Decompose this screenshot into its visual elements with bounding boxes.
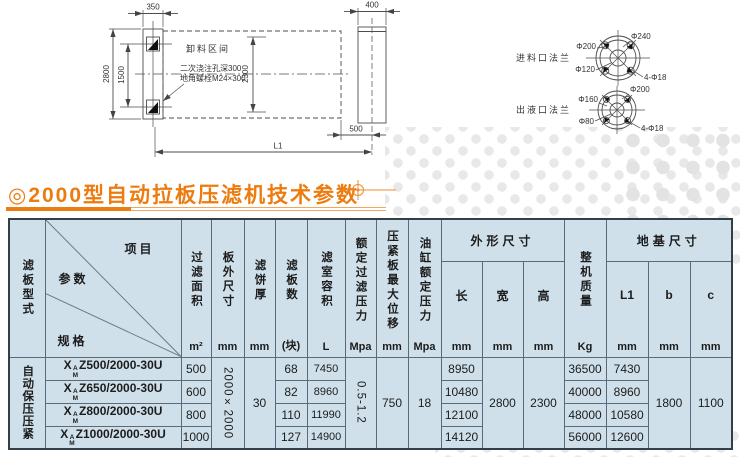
crosshair-mark	[340, 179, 400, 201]
corner-param-label: 参数	[59, 270, 89, 287]
cell-model-3: XAMZ1000/2000-30U	[45, 426, 181, 449]
cell-volume-1: 8960	[307, 380, 345, 403]
header-cake-thickness: 滤饼厚mm	[244, 219, 275, 357]
cell-model-0: XAMZ500/2000-30U	[45, 357, 181, 380]
cell-l1-0: 7430	[606, 357, 648, 380]
header-plate-type: 滤板型式	[9, 219, 45, 357]
cell-weight-2: 48000	[564, 403, 606, 426]
feed-flange-bolt-circle-dia: Φ200	[576, 42, 596, 51]
cell-filter-pressure-value: 0.5-1.2	[345, 357, 376, 449]
dim-350: 350	[146, 3, 160, 12]
cell-plates-2: 110	[275, 403, 307, 426]
feed-flange-view: Φ240 Φ200 Φ120 4-Φ18 进料口法兰	[516, 30, 667, 86]
cell-area-2: 800	[181, 403, 211, 426]
header-overall-dims-group: 外形尺寸	[441, 219, 564, 261]
dim-400: 400	[365, 1, 379, 10]
cell-cake-thickness-value: 30	[244, 357, 275, 449]
cell-l1-3: 12600	[606, 426, 648, 449]
anchor-note-line2: 地角螺栓M24×300	[180, 73, 246, 83]
underline-thick-segment	[6, 207, 131, 211]
cell-area-0: 500	[181, 357, 211, 380]
header-height: 高mm	[523, 261, 564, 357]
outlet-flange-bolt-circle-dia: Φ160	[578, 95, 598, 104]
anchor-note-line1: 二次浇注孔深300	[180, 63, 242, 73]
outlet-flange-view: Φ200 Φ160 Φ80 4-Φ18 出液口法兰	[516, 85, 664, 134]
spec-table: 滤板型式 项目 参数 规格 过滤面积m² 板外尺寸mm 滤饼厚mm 滤板数(块)…	[8, 218, 733, 450]
dim-2800: 2800	[102, 65, 111, 83]
underline-thin-segment	[131, 207, 386, 211]
corner-item-label: 项目	[124, 240, 154, 257]
table-row: 自动保压压紧 XAMZ500/2000-30U 500 2000×2000 30…	[9, 357, 732, 380]
feed-flange-inner-dia: Φ120	[575, 65, 595, 74]
title-underline	[6, 207, 386, 212]
cell-plates-1: 82	[275, 380, 307, 403]
header-max-displacement: 压紧板最大位移mm	[376, 219, 408, 357]
header-cylinder-pressure: 油缸额定压力Mpa	[408, 219, 441, 357]
cell-c-value: 1100	[690, 357, 732, 449]
header-foundation-l1: L1mm	[606, 261, 648, 357]
header-width: 宽mm	[482, 261, 523, 357]
dim-l1: L1	[274, 142, 283, 151]
cell-l1-2: 10580	[606, 403, 648, 426]
cell-length-1: 10480	[441, 380, 482, 403]
outlet-flange-inner-dia: Φ80	[579, 117, 595, 126]
feed-flange-outer-dia: Φ240	[631, 32, 651, 41]
outlet-flange-bolts: 4-Φ18	[641, 124, 664, 133]
outlet-flange-outer-dia: Φ200	[630, 85, 650, 94]
dim-1500: 1500	[117, 66, 126, 84]
cell-weight-3: 56000	[564, 426, 606, 449]
header-plate-size: 板外尺寸mm	[211, 219, 244, 357]
cell-volume-2: 11990	[307, 403, 345, 426]
cell-length-2: 12100	[441, 403, 482, 426]
engineering-drawing: 350 2800 1500 2300 400	[0, 0, 740, 175]
corner-spec-label: 规格	[58, 332, 88, 349]
header-corner-cell: 项目 参数 规格	[45, 219, 181, 357]
header-filter-pressure: 额定过滤压力Mpa	[345, 219, 376, 357]
cell-height-value: 2300	[523, 357, 564, 449]
cell-length-0: 8950	[441, 357, 482, 380]
cell-plate-size-value: 2000×2000	[211, 357, 244, 449]
cell-weight-0: 36500	[564, 357, 606, 380]
header-chamber-volume: 滤室容积L	[307, 219, 345, 357]
header-foundation-c: cmm	[690, 261, 732, 357]
cell-weight-1: 40000	[564, 380, 606, 403]
outlet-flange-label: 出液口法兰	[516, 104, 571, 115]
header-plate-count: 滤板数(块)	[275, 219, 307, 357]
header-foundation-b: bmm	[648, 261, 690, 357]
header-filter-area: 过滤面积m²	[181, 219, 211, 357]
cell-area-3: 1000	[181, 426, 211, 449]
cell-b-value: 1800	[648, 357, 690, 449]
feed-flange-label: 进料口法兰	[516, 52, 571, 63]
cell-l1-1: 8960	[606, 380, 648, 403]
cell-plates-3: 127	[275, 426, 307, 449]
header-length: 长mm	[441, 261, 482, 357]
catalog-page: 350 2800 1500 2300 400	[0, 0, 740, 457]
cell-cylinder-pressure-value: 18	[408, 357, 441, 449]
main-view: 350 2800 1500 2300 400	[102, 1, 400, 158]
feed-flange-bolts: 4-Φ18	[644, 73, 667, 82]
cell-model-1: XAMZ650/2000-30U	[45, 380, 181, 403]
cell-plate-type-value: 自动保压压紧	[9, 357, 45, 449]
cell-area-1: 600	[181, 380, 211, 403]
unload-area-label: 卸料区间	[186, 43, 230, 54]
cell-plates-0: 68	[275, 357, 307, 380]
cell-width-value: 2800	[482, 357, 523, 449]
cell-displacement-value: 750	[376, 357, 408, 449]
cell-volume-3: 14900	[307, 426, 345, 449]
cell-volume-0: 7450	[307, 357, 345, 380]
page-title: ◎2000型自动拉板压滤机技术参数	[8, 179, 359, 209]
header-machine-weight: 整机质量Kg	[564, 219, 606, 357]
dim-500: 500	[349, 125, 363, 134]
cell-model-2: XAMZ800/2000-30U	[45, 403, 181, 426]
header-foundation-dims-group: 地基尺寸	[606, 219, 732, 261]
cell-length-3: 14120	[441, 426, 482, 449]
